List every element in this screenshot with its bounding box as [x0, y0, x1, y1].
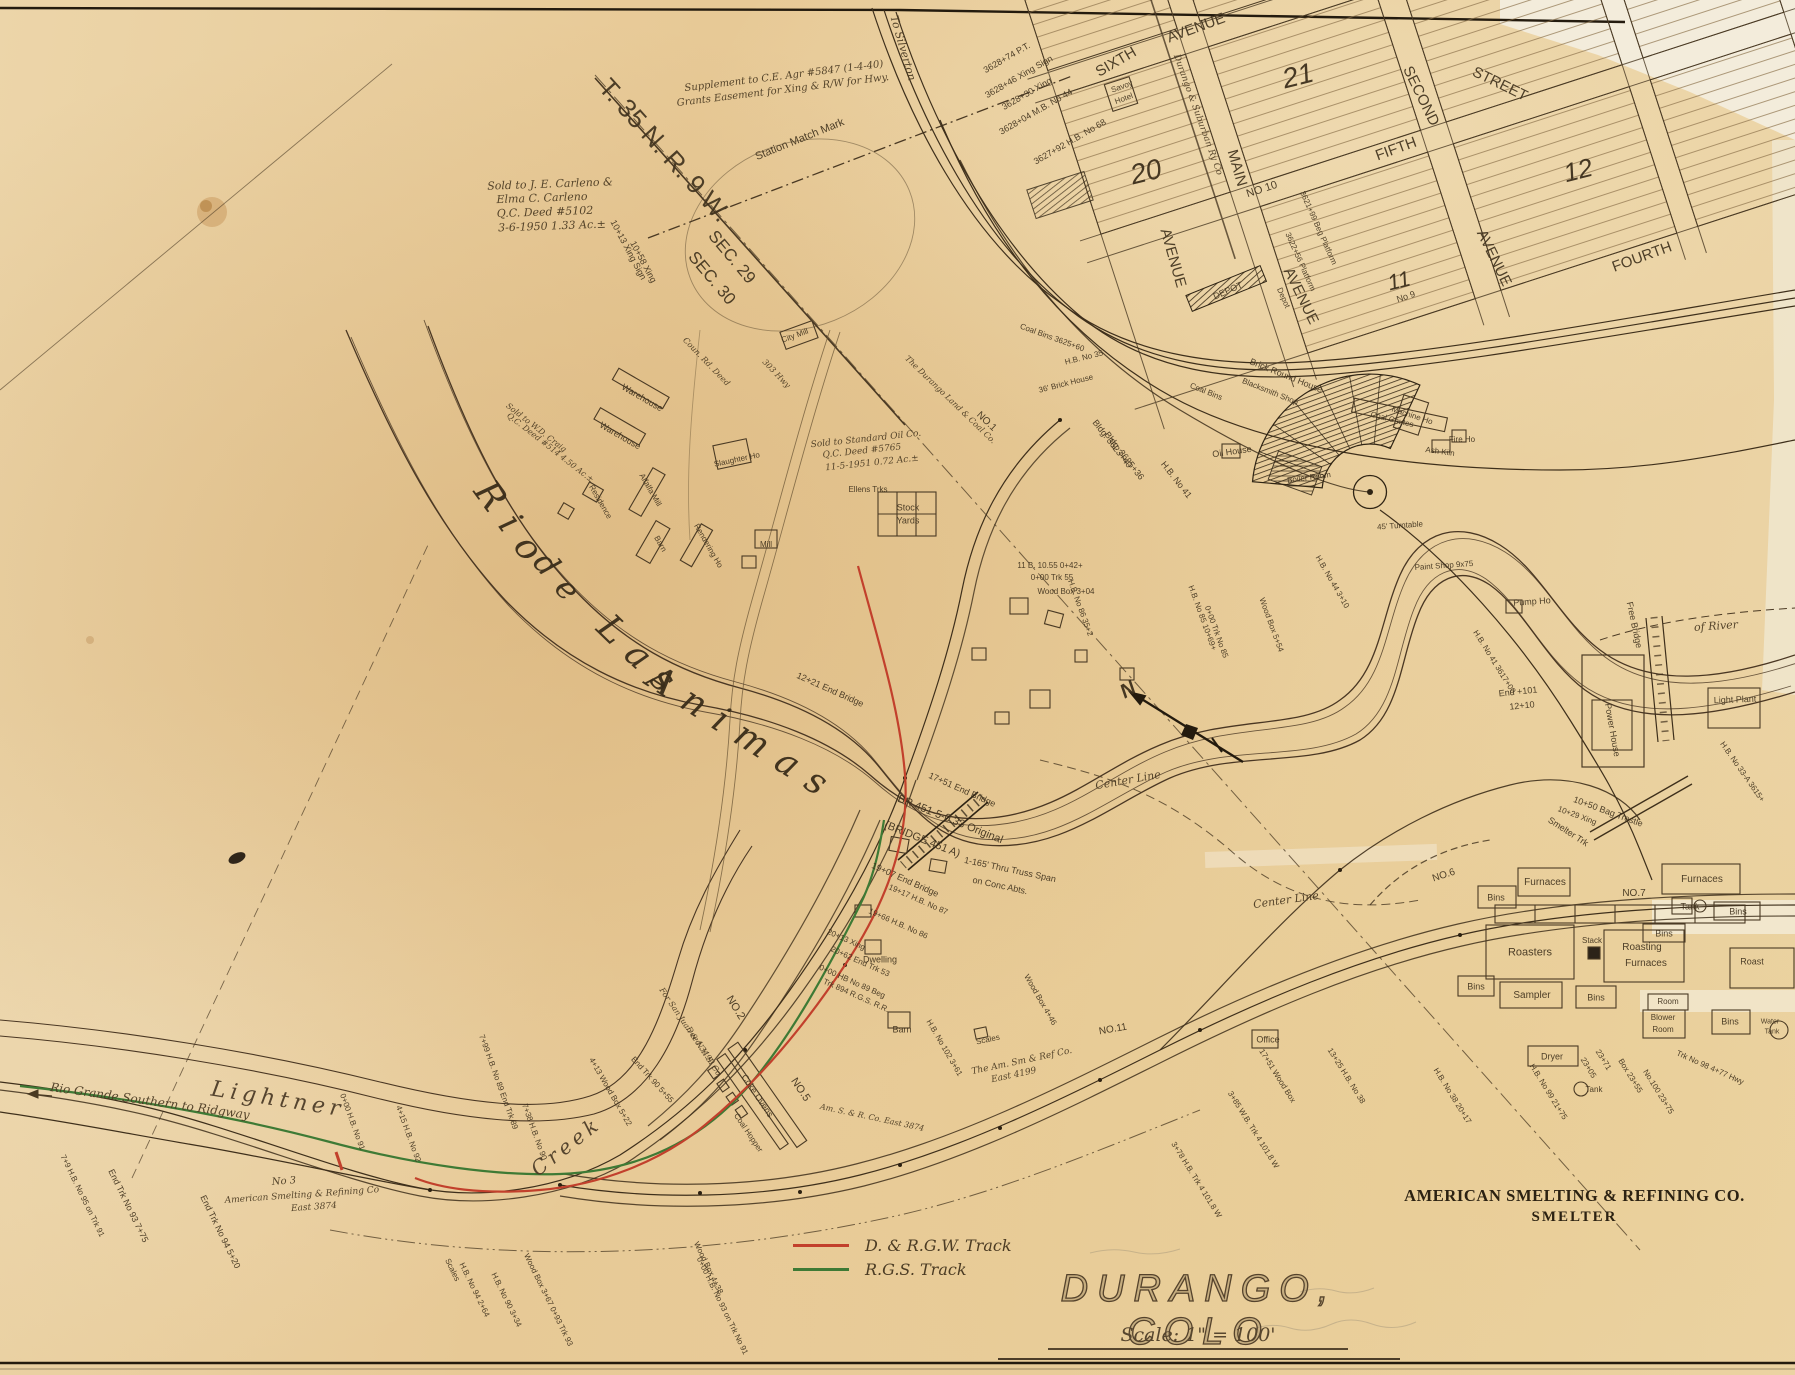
map-label: Oil House — [1212, 445, 1252, 459]
map-label: Slaughter Ho — [713, 451, 760, 469]
map-label: Durango & Suburban Ry Co — [1171, 53, 1223, 176]
map-label: Roasters — [1508, 948, 1552, 959]
map-label: Am. S. & R. Co. East 3874 — [819, 1103, 925, 1133]
map-label: STREET — [1470, 64, 1530, 103]
map-label: 3627+92 H.B. No 68 — [1032, 118, 1107, 167]
map-label: Ellens Trks — [848, 486, 887, 494]
map-label: 19+66 H.B. No 86 — [867, 907, 929, 940]
map-label: Elma C. Carleno — [496, 191, 587, 205]
map-label: AVENUE — [1474, 227, 1514, 288]
map-label: 17+51 Wood Box — [1257, 1048, 1296, 1104]
map-scale: Scale: 1" = 100' — [1048, 1324, 1348, 1350]
map-label: Yards — [897, 517, 920, 526]
map-label: East 3874 — [291, 1202, 337, 1214]
map-label: Warehouse — [598, 421, 642, 452]
map-label: Scales — [975, 1034, 1000, 1047]
map-label: Rendering Ho — [692, 523, 724, 570]
map-label: Boiler Room — [1287, 471, 1332, 485]
map-label: Sampler — [1513, 991, 1550, 1001]
map-label: Pump Ho — [1513, 596, 1551, 608]
map-label: Stack — [1582, 937, 1602, 945]
map-label: Hotel — [1114, 92, 1134, 106]
map-label: H.B. No 102 3+61 — [925, 1018, 964, 1077]
map-label: 3-6-1950 1.33 Ac.± — [498, 219, 606, 234]
map-label: Barn — [892, 1026, 911, 1035]
map-label: AVENUE — [1157, 227, 1188, 289]
map-label: Wood Box 5+54 — [1257, 597, 1284, 653]
map-label: H.B. No 35 — [1064, 349, 1104, 366]
map-label: Bins — [1487, 894, 1505, 903]
map-label: H.B. No 99 21+75 — [1528, 1063, 1569, 1121]
map-label: H.B. No 90 3+34 — [489, 1272, 522, 1329]
company-block: AMERICAN SMELTING & REFINING CO. SMELTER — [1402, 1186, 1747, 1226]
map-label: Sold to J. E. Carleno & — [487, 176, 613, 191]
map-label: 23+71 — [1594, 1048, 1613, 1071]
map-label: Free Bridge — [1625, 601, 1644, 649]
map-label: 3621+99 Beg Platform — [1298, 190, 1338, 266]
map-label: H.B. No 41 3617+00 — [1471, 629, 1516, 695]
track-legend: D. & R.G.W. Track R.G.S. Track — [793, 1233, 1012, 1281]
map-label: 20 — [1127, 155, 1164, 190]
map-label: 7+99 H.B. No 89 End Trk 89 — [477, 1034, 519, 1131]
map-label: 7+38 H.B. No 90 — [520, 1103, 548, 1162]
map-label: Coke Ovens — [739, 1073, 774, 1119]
map-label: Coal Hopper — [732, 1112, 764, 1154]
map-label: No.100 23+75 — [1641, 1068, 1675, 1115]
map-label: Mill — [760, 541, 772, 549]
map-label: Stock — [897, 504, 920, 513]
map-label: 36' Brick House — [1038, 373, 1094, 394]
map-label: N — [1117, 678, 1140, 703]
map-label: 17+51 End Bridge — [927, 771, 997, 809]
map-label: 3+78 H.B. Trk 4 101.8 W — [1169, 1141, 1222, 1220]
map-label: Tank — [1765, 1029, 1780, 1036]
map-label: 45' Turntable — [1377, 520, 1423, 531]
map-label: FIFTH — [1373, 135, 1418, 164]
map-label: End Trk No 93 7+75 — [106, 1168, 149, 1244]
map-label: 0+00 Trk 55 — [1031, 574, 1073, 582]
company-name: AMERICAN SMELTING & REFINING CO. — [1402, 1186, 1747, 1206]
map-label: Q.C. Deed #5102 — [497, 205, 594, 219]
map-label: Ash Kiln — [1425, 446, 1455, 458]
map-label: Trk No 98 4+77 Hwy — [1675, 1050, 1745, 1087]
legend-item-rgs: R.G.S. Track — [793, 1257, 1012, 1281]
map-label: Blower — [1651, 1014, 1675, 1022]
map-label: 12+10 — [1509, 700, 1535, 712]
map-label: Deed 3499 — [684, 1026, 715, 1067]
map-label: 12 — [1561, 154, 1595, 186]
map-label: Paint Shop 9x75 — [1414, 560, 1473, 572]
map-label: H.B. No 94 2+64 — [457, 1262, 490, 1319]
map-label: Fire Ho — [1449, 436, 1475, 444]
map-label: 4+15 H.B. No 92 — [394, 1105, 422, 1164]
legend-swatch-red-line — [793, 1244, 849, 1247]
map-label: NO.2 — [724, 994, 747, 1022]
map-label: Bins — [1721, 1018, 1739, 1027]
map-label: Bldg. 3625+36 — [1103, 430, 1146, 481]
map-label: Alfalfa Mill — [637, 472, 662, 508]
map-label: Center Line — [1252, 890, 1319, 910]
map-label: Bins — [1467, 983, 1485, 992]
map-sheet: AVENUESIXTHMAINAVENUENO 102120SECONDSTRE… — [0, 0, 1795, 1375]
map-label: NO.6 — [1431, 868, 1456, 885]
map-label: Coal Bins 3625+60 — [1019, 323, 1085, 354]
map-label: Furnaces — [1625, 959, 1667, 969]
map-label: Station Match Mark — [754, 117, 846, 163]
map-label: Coun. Rd. Deed — [681, 336, 731, 387]
map-label: City Mill — [780, 327, 809, 344]
map-label: Wood Box 3+67 0+93 Trk 93 — [522, 1253, 574, 1348]
map-label: Office — [1256, 1036, 1279, 1045]
map-label: Warehouse — [620, 383, 664, 414]
map-label: No 3 — [272, 1176, 297, 1188]
map-label: Q.C. Deed #514 4.50 Ac.± — [505, 412, 595, 485]
map-label: 23+05 — [1579, 1056, 1598, 1079]
map-label: 13+25 H.B. No 38 — [1326, 1047, 1367, 1105]
map-label: Residence — [587, 484, 613, 521]
map-label: 21 — [1279, 59, 1316, 94]
map-label: FOURTH — [1610, 239, 1674, 274]
map-label: NO.5 — [788, 1076, 811, 1103]
map-label: Dryer — [1541, 1053, 1563, 1062]
map-label: Wood Box 4+46 — [1022, 973, 1057, 1026]
map-label: SECOND — [1400, 64, 1442, 128]
map-label: 12+21 End Bridge — [795, 671, 865, 709]
map-label: SIXTH — [1093, 44, 1139, 79]
map-label: on Conc Abts. — [972, 876, 1029, 896]
legend-item-drgw: D. & R.G.W. Track — [793, 1233, 1012, 1257]
map-label: Scales — [443, 1257, 461, 1282]
map-label: 303 Hwy — [761, 358, 792, 390]
map-label: Power House — [1603, 703, 1621, 758]
map-label: Dwelling — [863, 956, 897, 965]
map-label: End Trk 90 5+55 — [629, 1055, 674, 1104]
map-label: Furnaces — [1681, 875, 1723, 885]
legend-swatch-green-line — [793, 1268, 849, 1271]
map-label: Tank — [1586, 1086, 1603, 1094]
map-label: MAIN — [1225, 148, 1250, 188]
map-label: Box 23+55 — [1616, 1058, 1643, 1095]
map-label: AVENUE — [1165, 11, 1227, 46]
map-label: Wood Box 3+04 — [1037, 588, 1094, 596]
map-label: Tank — [1680, 903, 1699, 912]
map-label: 3628+04 M.B. No 44 — [998, 87, 1074, 136]
map-label: H.B. No 38 20+17 — [1432, 1067, 1473, 1125]
map-label: Room — [1652, 1026, 1673, 1034]
map-label: End +101 — [1498, 685, 1538, 698]
map-label: Water — [1761, 1019, 1779, 1026]
legend-label-drgw: D. & R.G.W. Track — [865, 1236, 1012, 1255]
map-labels-layer: AVENUESIXTHMAINAVENUENO 102120SECONDSTRE… — [0, 0, 1795, 1375]
company-sub: SMELTER — [1402, 1209, 1747, 1226]
map-label: 11 B. 10.55 0+42+ — [1017, 562, 1082, 570]
map-label: End Trk No 94 5+20 — [198, 1194, 241, 1270]
map-label: Coal Bins — [1189, 382, 1224, 402]
map-label: DEPOT — [1212, 281, 1244, 302]
map-label: 0+00 H.B. No 93 on Trk No 91 — [695, 1256, 749, 1356]
map-label: Center Line — [1094, 769, 1161, 791]
map-label: Sold to W.D. Craig — [504, 402, 567, 454]
map-label: Bins — [1655, 930, 1673, 939]
map-label: Roasting — [1622, 943, 1661, 953]
map-label: NO.7 — [1622, 889, 1645, 899]
map-label: Light Plant — [1714, 695, 1757, 705]
map-label: Room — [1657, 998, 1678, 1006]
map-label: NO.11 — [1098, 1023, 1127, 1038]
map-label: Barn — [652, 535, 667, 554]
map-label: H.B. No 44 3+10 — [1314, 554, 1351, 609]
map-label: Furnaces — [1524, 878, 1566, 888]
map-label: of River — [1694, 619, 1739, 633]
map-label: de — [528, 546, 594, 616]
map-label: Roast — [1740, 958, 1764, 967]
map-label: Bins — [1729, 908, 1747, 917]
map-label: H.B. No 33-A 3615+ — [1718, 740, 1766, 803]
map-label: To Silverton — [888, 14, 917, 82]
map-label: 7+9 H.B. No 95 on Trk 91 — [59, 1154, 106, 1239]
map-label: 3+85 W.B. Trk 4 101.8 W — [1226, 1090, 1280, 1170]
map-label: H.B. No 41 — [1159, 460, 1193, 500]
map-label: Bins — [1587, 994, 1605, 1003]
legend-label-rgs: R.G.S. Track — [865, 1260, 967, 1279]
